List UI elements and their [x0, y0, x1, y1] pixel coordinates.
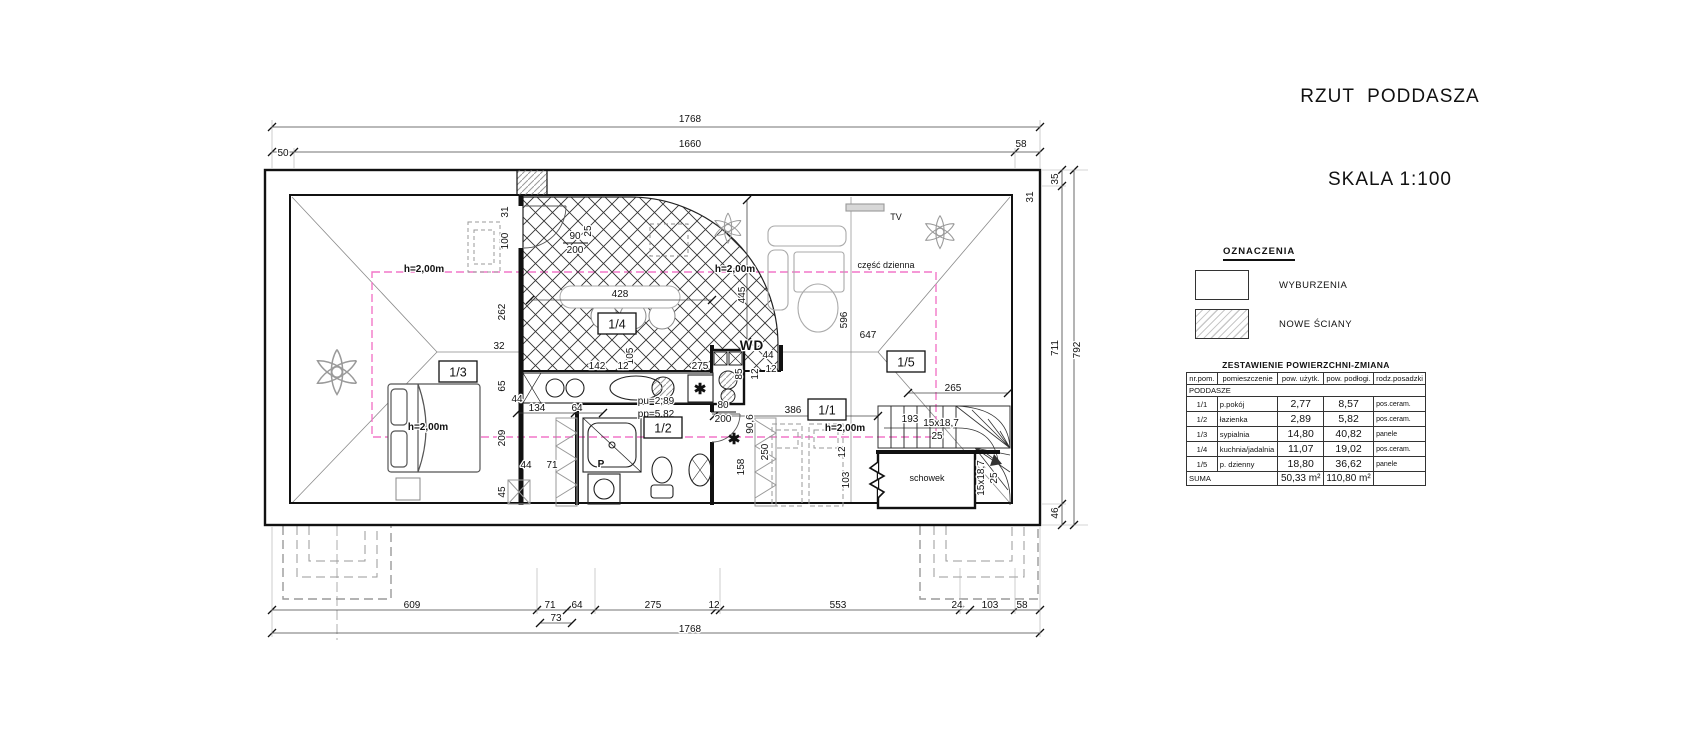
plan-label: 275	[645, 600, 662, 611]
plan-label: 25	[583, 225, 594, 237]
plan-label: 1768	[679, 624, 702, 635]
plan-label: 1660	[679, 139, 702, 150]
plan-label: 250	[760, 443, 771, 460]
table-cell: pos.ceram.	[1374, 397, 1426, 412]
drawing-title: RZUT PODDASZA SKALA 1:100	[1292, 28, 1488, 248]
plan-label: 64	[571, 403, 583, 414]
table-cell: 11,07	[1278, 442, 1324, 457]
legend-item-wyburzenia: WYBURZENIA	[1195, 270, 1415, 300]
table-cell: 50,33 m²	[1278, 472, 1324, 486]
table-cell: 1/4	[1187, 442, 1218, 457]
table-cell: 40,82	[1324, 427, 1374, 442]
table-cell: p. dzienny	[1217, 457, 1278, 472]
plan-label: 44	[520, 460, 532, 471]
plan-label: 25	[989, 472, 1000, 484]
plan-label: 158	[736, 458, 747, 475]
table-row: 1/2łazienka2,895,82pos.ceram.	[1187, 412, 1426, 427]
room-tag: 1/3	[449, 366, 466, 380]
plan-label: h=2,00m	[408, 422, 448, 433]
plan-label: 553	[830, 600, 847, 611]
title-line1: RZUT PODDASZA	[1292, 83, 1488, 111]
area-table-section: PODDASZE	[1187, 385, 1426, 397]
plan-label: 103	[982, 600, 999, 611]
plan-label: 12	[617, 361, 629, 372]
area-table-grid: nr.pom.pomieszczeniepow. użytk.pow. podł…	[1186, 372, 1426, 486]
table-cell: 2,77	[1278, 397, 1324, 412]
plan-label: 90,6	[745, 414, 756, 434]
plan-label: 1768	[679, 114, 702, 125]
plan-label: 64	[571, 600, 583, 611]
plan-label: 209	[497, 429, 508, 446]
plan-label: 596	[839, 311, 850, 328]
plan-label: 12	[750, 368, 761, 380]
table-cell	[1374, 472, 1426, 486]
table-cell: 1/5	[1187, 457, 1218, 472]
plan-label: 58	[1015, 139, 1027, 150]
plan-label: P	[598, 459, 605, 470]
sink-bowl	[546, 379, 564, 397]
plan-label: 386	[785, 405, 802, 416]
room-tag: 1/2	[654, 422, 671, 436]
legend: OZNACZENIA WYBURZENIA NOWE ŚCIANY	[1195, 246, 1415, 339]
demolition-swatch	[1195, 270, 1249, 300]
plan-label: 200	[715, 414, 732, 425]
plan-label: 647	[860, 330, 877, 341]
plan-label: 35	[1050, 173, 1061, 185]
plant-icon	[924, 216, 957, 249]
plan-label: 12	[765, 364, 777, 375]
area-table-title: ZESTAWIENIE POWIERZCHNI-ZMIANA	[1186, 360, 1426, 370]
area-table-header: pomieszczenie	[1217, 373, 1278, 385]
plan-label: 445	[737, 286, 748, 303]
table-cell: 18,80	[1278, 457, 1324, 472]
toilet	[652, 457, 672, 483]
sink-bowl	[566, 379, 584, 397]
tv-unit	[846, 204, 884, 211]
table-cell: 5,82	[1324, 412, 1374, 427]
plan-label: pu=2,89	[638, 396, 675, 407]
plan-label: 428	[612, 289, 629, 300]
plan-label: 711	[1050, 340, 1061, 356]
area-table-header: rodz.posadzki	[1374, 373, 1426, 385]
plan-label: 100	[500, 232, 511, 249]
plan-label: 32	[493, 341, 505, 352]
plan-label: 193	[902, 414, 919, 425]
room-tag: 1/1	[818, 404, 835, 418]
plan-label: schowek	[909, 473, 945, 483]
table-row: 1/5p. dzienny18,8036,62panele	[1187, 457, 1426, 472]
plan-label: 24	[951, 600, 963, 611]
plan-label: 71	[546, 460, 558, 471]
nightstand	[396, 478, 420, 500]
plan-label: 15x18,7	[923, 418, 959, 429]
table-cell: 36,62	[1324, 457, 1374, 472]
plan-label: 609	[404, 600, 421, 611]
plan-label: WD	[740, 338, 765, 353]
table-cell: 8,57	[1324, 397, 1374, 412]
table-cell: 19,02	[1324, 442, 1374, 457]
table-cell: panele	[1374, 457, 1426, 472]
table-cell: SUMA	[1187, 472, 1278, 486]
plan-label: TV	[890, 212, 902, 222]
table-cell: kuchnia/jadalnia	[1217, 442, 1278, 457]
area-table-header: pow. użytk.	[1278, 373, 1324, 385]
plan-label: 50	[277, 148, 289, 159]
plan-label: 15x18,7	[976, 460, 987, 496]
plan-label: h=2,00m	[404, 264, 444, 275]
plan-label: ✱	[694, 381, 707, 398]
area-table-header: pow. podłogi.	[1324, 373, 1374, 385]
plan-label: 85	[734, 368, 745, 380]
table-cell: 1/1	[1187, 397, 1218, 412]
floor-plan-svg: 1768166050586097164275125532410358731768…	[0, 0, 1100, 752]
plan-label: 142	[589, 361, 606, 372]
table-row: 1/3sypialnia14,8040,82panele	[1187, 427, 1426, 442]
table-cell: sypialnia	[1217, 427, 1278, 442]
plan-label: 44	[511, 394, 523, 405]
plan-label: 45	[497, 486, 508, 498]
legend-heading: OZNACZENIA	[1223, 246, 1295, 261]
plan-label: 200	[567, 245, 584, 256]
legend-item-label: WYBURZENIA	[1279, 280, 1347, 291]
plan-label: 12	[837, 446, 848, 458]
chimney	[517, 170, 547, 195]
plan-label: 12	[708, 600, 720, 611]
wardrobe-dashed	[468, 222, 500, 272]
legend-item-nowe-sciany: NOWE ŚCIANY	[1195, 309, 1415, 339]
plan-label: 25	[931, 431, 943, 442]
plan-label: ✱	[728, 431, 741, 448]
table-cell: 1/2	[1187, 412, 1218, 427]
table-cell: 14,80	[1278, 427, 1324, 442]
plan-label: 65	[497, 380, 508, 392]
table-cell: panele	[1374, 427, 1426, 442]
plan-label: h=2,00m	[715, 264, 755, 275]
table-cell: pos.ceram.	[1374, 412, 1426, 427]
area-table-body: PODDASZE1/1p.pokój2,778,57pos.ceram.1/2ł…	[1187, 385, 1426, 486]
dormer-outlines	[283, 526, 1038, 640]
plan-label: 262	[497, 303, 508, 320]
plan-label: 46	[1050, 507, 1061, 519]
table-cell: pos.ceram.	[1374, 442, 1426, 457]
kitchen-counter	[523, 373, 713, 403]
plan-label: 792	[1072, 341, 1083, 358]
plan-label: 265	[945, 383, 962, 394]
plan-label: 71	[544, 600, 556, 611]
table-summary-row: SUMA50,33 m²110,80 m²	[1187, 472, 1426, 486]
plan-label: 31	[500, 206, 511, 218]
table-cell: łazienka	[1217, 412, 1278, 427]
plan-label: h=2,00m	[825, 423, 865, 434]
plan-label: 31	[1025, 191, 1036, 203]
legend-item-label: NOWE ŚCIANY	[1279, 319, 1352, 330]
table-cell: 110,80 m²	[1324, 472, 1374, 486]
plan-label: 80	[717, 400, 729, 411]
plan-label: 275	[692, 361, 709, 372]
table-cell: p.pokój	[1217, 397, 1278, 412]
plan-label: część dzienna	[857, 260, 914, 270]
plan-label: 134	[529, 403, 546, 414]
room-tag: 1/4	[608, 318, 625, 332]
new-walls-swatch	[1195, 309, 1249, 339]
plant-icon	[315, 350, 360, 395]
plan-label: 58	[1016, 600, 1028, 611]
table-row: 1/4kuchnia/jadalnia11,0719,02pos.ceram.	[1187, 442, 1426, 457]
plan-label: 73	[550, 613, 562, 624]
area-table: ZESTAWIENIE POWIERZCHNI-ZMIANA nr.pom.po…	[1186, 360, 1426, 486]
title-line2: SKALA 1:100	[1292, 166, 1488, 194]
table-cell: 2,89	[1278, 412, 1324, 427]
room-tag: 1/5	[897, 356, 914, 370]
area-table-header: nr.pom.	[1187, 373, 1218, 385]
table-cell: 1/3	[1187, 427, 1218, 442]
plan-label: 90	[569, 231, 581, 242]
table-row: 1/1p.pokój2,778,57pos.ceram.	[1187, 397, 1426, 412]
plan-label: 103	[841, 471, 852, 488]
